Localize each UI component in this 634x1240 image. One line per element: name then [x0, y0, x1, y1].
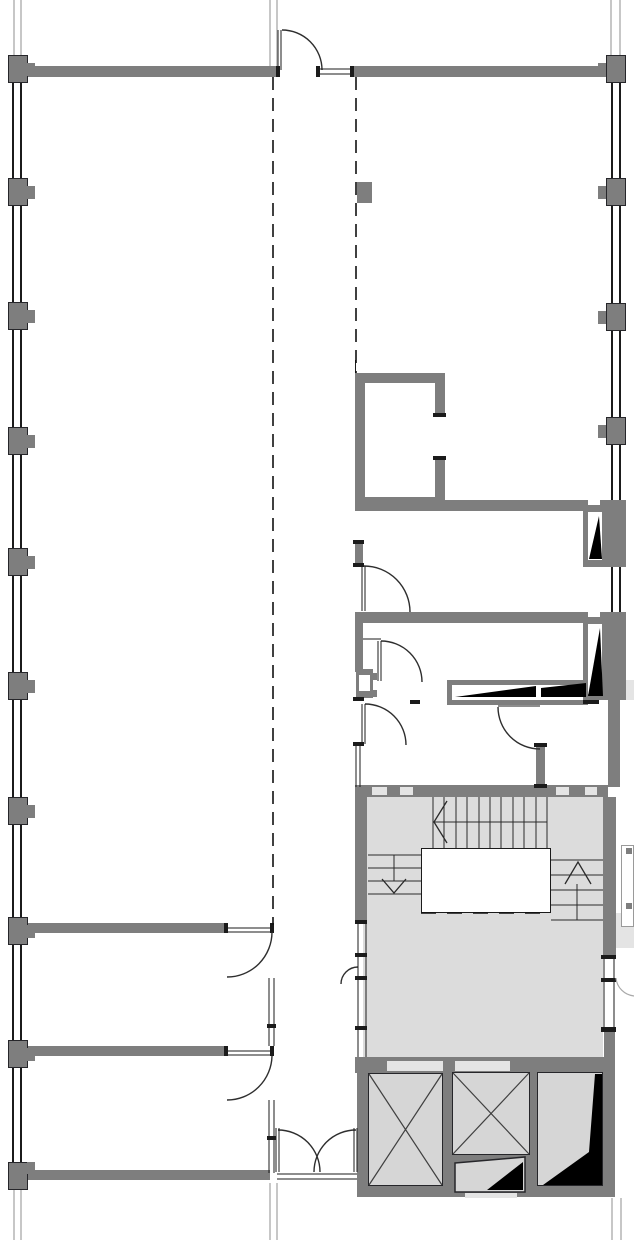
grid-line — [13, 0, 15, 57]
window-line — [619, 331, 621, 417]
door-arc-faint — [616, 978, 634, 996]
elevator-shaft — [368, 1073, 443, 1186]
column-tab — [598, 311, 606, 324]
column-tab — [598, 186, 606, 199]
elevator-shaft — [452, 1072, 530, 1155]
wall-niche — [372, 787, 387, 795]
stair-landing — [421, 848, 551, 913]
window-line — [619, 567, 621, 612]
grid-tick — [355, 360, 356, 373]
grid-line — [276, 1183, 278, 1240]
jamb-tick — [583, 700, 599, 704]
column — [606, 178, 626, 206]
window-line — [611, 567, 613, 612]
grid-line — [20, 0, 22, 57]
grid-line — [20, 1183, 22, 1240]
jamb-tick — [534, 784, 547, 788]
elevator-door-opening — [387, 1061, 443, 1071]
interior-wall — [355, 612, 588, 623]
column-tab — [598, 425, 606, 438]
jamb-tick — [353, 540, 364, 544]
jamb-tick — [350, 66, 354, 77]
jamb-tick — [267, 1136, 276, 1140]
core-wall-top — [355, 785, 608, 797]
machine-room — [537, 1072, 603, 1186]
partition-wall — [28, 1046, 225, 1056]
door-arc — [227, 1056, 272, 1100]
shaft-room-wall — [355, 373, 445, 383]
window-line — [611, 331, 613, 417]
door-arc — [227, 932, 272, 977]
jamb-tick — [601, 955, 616, 959]
column-tab — [27, 680, 35, 693]
jamb-tick — [601, 978, 616, 982]
shaft-room-wall — [435, 460, 445, 497]
interior-wall — [355, 500, 588, 511]
door-frame-tab — [373, 690, 377, 697]
column-tab — [27, 435, 35, 448]
window-line — [611, 206, 613, 303]
column-tab — [27, 186, 35, 199]
door-arc — [282, 30, 322, 70]
jamb-tick — [410, 700, 420, 704]
duct-pocket-inner — [588, 512, 602, 560]
floor-plan-canvas — [0, 0, 634, 1240]
core-wall-left-lower — [355, 1057, 367, 1073]
jamb-tick — [267, 1024, 276, 1028]
jamb-tick — [601, 1027, 616, 1032]
column — [8, 797, 28, 825]
wall-block — [608, 700, 620, 787]
jamb-tick — [353, 697, 364, 701]
wall-stub — [536, 745, 545, 787]
exterior-wall-top — [352, 66, 606, 77]
balcony-post — [626, 848, 632, 854]
column — [606, 55, 626, 83]
wall-niche — [556, 787, 569, 795]
core-wall-right — [603, 797, 616, 957]
window-line — [619, 445, 621, 500]
column — [8, 1162, 28, 1190]
wall-stub — [355, 623, 363, 672]
core-wall-left — [355, 797, 367, 922]
window-line — [20, 83, 22, 1162]
door-arc — [314, 1130, 356, 1172]
grid-line — [276, 0, 278, 66]
column — [8, 302, 28, 330]
jamb-tick — [355, 920, 367, 924]
column-tab — [27, 63, 35, 76]
jamb-tick — [224, 923, 228, 933]
column-tab — [27, 925, 35, 938]
column — [606, 303, 626, 331]
partition-wall — [28, 923, 225, 933]
column-tab — [27, 1048, 35, 1061]
column — [606, 417, 626, 445]
column — [8, 548, 28, 576]
wall-niche — [400, 787, 413, 795]
jamb-tick — [355, 953, 367, 957]
window-line — [611, 445, 613, 500]
column-tab — [27, 1162, 35, 1174]
jamb-tick — [316, 66, 320, 77]
door-frame-inner — [359, 675, 370, 691]
slab-strip — [465, 1193, 517, 1198]
wall-niche — [585, 787, 597, 795]
duct-pocket-inner — [588, 624, 602, 694]
window-line — [12, 83, 14, 1162]
jamb-tick — [355, 1026, 367, 1030]
column — [8, 427, 28, 455]
duct-pocket-inner — [452, 685, 583, 700]
grid-line — [269, 1183, 271, 1240]
door-arc — [364, 566, 410, 612]
column-tab — [27, 556, 35, 569]
door-arc — [278, 1130, 320, 1172]
jamb-tick — [433, 413, 446, 417]
grid-line — [620, 1198, 622, 1240]
column — [8, 178, 28, 206]
elevator-door-opening — [455, 1061, 510, 1071]
stair-core-floor — [363, 797, 603, 1057]
jamb-tick — [534, 743, 547, 747]
shaft-room-wall — [435, 383, 445, 413]
grid-line — [610, 0, 612, 57]
core-wall-right-lower — [604, 1030, 615, 1060]
grid-line — [619, 0, 621, 57]
jamb-tick — [270, 923, 274, 933]
window-line — [619, 206, 621, 303]
window-line — [619, 83, 621, 178]
jamb-tick — [353, 742, 364, 746]
grid-line — [13, 1183, 15, 1240]
jamb-tick — [353, 563, 364, 567]
column — [8, 672, 28, 700]
jamb-tick — [433, 456, 446, 460]
jamb-tick — [355, 976, 367, 980]
exterior-wall-bottom — [28, 1170, 270, 1180]
column — [8, 55, 28, 83]
grid-line — [269, 0, 271, 66]
door-frame-tab — [373, 673, 377, 680]
door-arc — [365, 704, 406, 745]
balcony-post — [626, 903, 632, 909]
column — [8, 917, 28, 945]
jamb-tick — [270, 1046, 274, 1056]
balcony — [621, 845, 634, 927]
door-arc — [381, 641, 422, 682]
jamb-tick — [276, 66, 280, 77]
window-line — [611, 83, 613, 178]
shaft-room-wall — [355, 383, 365, 507]
jamb-tick — [224, 1046, 228, 1056]
exterior-wall-top — [28, 66, 278, 77]
column-tab — [27, 310, 35, 323]
column — [357, 182, 372, 203]
grid-line — [611, 1198, 613, 1240]
column-tab — [598, 63, 606, 76]
column-tab — [27, 805, 35, 818]
column — [8, 1040, 28, 1068]
